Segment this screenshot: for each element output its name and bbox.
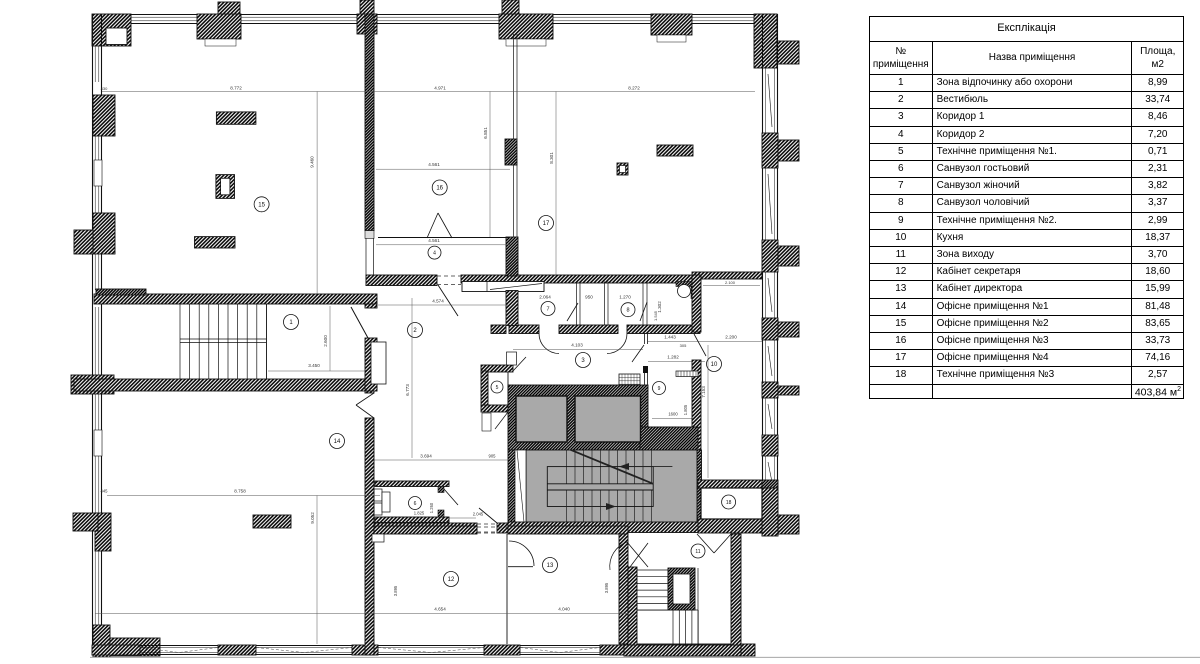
svg-text:3.895: 3.895 xyxy=(604,582,609,593)
svg-text:3.895: 3.895 xyxy=(393,585,398,596)
svg-text:15: 15 xyxy=(258,202,265,208)
svg-text:6: 6 xyxy=(414,501,417,507)
svg-text:6.773: 6.773 xyxy=(405,384,410,396)
svg-text:1.443: 1.443 xyxy=(664,335,676,340)
svg-text:10: 10 xyxy=(711,362,718,368)
svg-text:2.200: 2.200 xyxy=(725,335,737,340)
svg-text:7: 7 xyxy=(546,306,549,312)
svg-text:4.561: 4.561 xyxy=(428,162,440,167)
svg-text:1.260: 1.260 xyxy=(429,502,434,513)
svg-text:16: 16 xyxy=(436,186,443,192)
svg-text:4.971: 4.971 xyxy=(434,86,446,91)
svg-text:9.052: 9.052 xyxy=(310,512,315,524)
svg-text:18: 18 xyxy=(726,500,732,506)
svg-text:4: 4 xyxy=(433,250,436,256)
svg-text:430: 430 xyxy=(101,86,108,91)
svg-text:1.545: 1.545 xyxy=(653,310,658,321)
svg-text:4.103: 4.103 xyxy=(571,343,583,348)
svg-text:1.282: 1.282 xyxy=(667,355,679,360)
svg-text:3.450: 3.450 xyxy=(308,363,320,368)
svg-text:3.694: 3.694 xyxy=(420,453,432,458)
svg-text:1.270: 1.270 xyxy=(619,294,631,299)
svg-text:11: 11 xyxy=(695,549,700,555)
svg-text:2.064: 2.064 xyxy=(539,294,551,299)
svg-text:9.460: 9.460 xyxy=(310,156,315,168)
svg-text:14: 14 xyxy=(334,439,341,445)
svg-text:4.561: 4.561 xyxy=(428,238,440,243)
svg-text:8.301: 8.301 xyxy=(549,152,554,164)
svg-text:1600: 1600 xyxy=(668,412,678,417)
svg-text:445: 445 xyxy=(101,489,109,494)
svg-text:6.851: 6.851 xyxy=(483,127,488,139)
svg-text:7.153: 7.153 xyxy=(701,386,706,398)
svg-text:12: 12 xyxy=(448,577,455,583)
svg-text:8.772: 8.772 xyxy=(230,86,242,91)
svg-text:4.574: 4.574 xyxy=(432,298,444,303)
svg-text:305: 305 xyxy=(680,343,687,348)
svg-text:17: 17 xyxy=(543,221,550,227)
svg-text:4.040: 4.040 xyxy=(558,607,570,612)
svg-text:13: 13 xyxy=(547,563,554,569)
svg-text:8: 8 xyxy=(626,308,629,314)
svg-text:950: 950 xyxy=(585,294,593,299)
svg-text:905: 905 xyxy=(489,453,497,458)
svg-text:2.045: 2.045 xyxy=(473,512,484,517)
svg-text:1.302: 1.302 xyxy=(657,301,662,313)
svg-text:2.600: 2.600 xyxy=(323,335,328,347)
svg-text:2.100: 2.100 xyxy=(725,280,736,285)
svg-text:8.272: 8.272 xyxy=(628,86,640,91)
svg-text:8.758: 8.758 xyxy=(234,489,246,494)
svg-text:9: 9 xyxy=(658,386,661,392)
svg-text:5: 5 xyxy=(496,385,499,391)
svg-text:1.825: 1.825 xyxy=(414,511,425,516)
svg-text:1.805: 1.805 xyxy=(683,404,688,415)
svg-text:4.654: 4.654 xyxy=(434,607,446,612)
